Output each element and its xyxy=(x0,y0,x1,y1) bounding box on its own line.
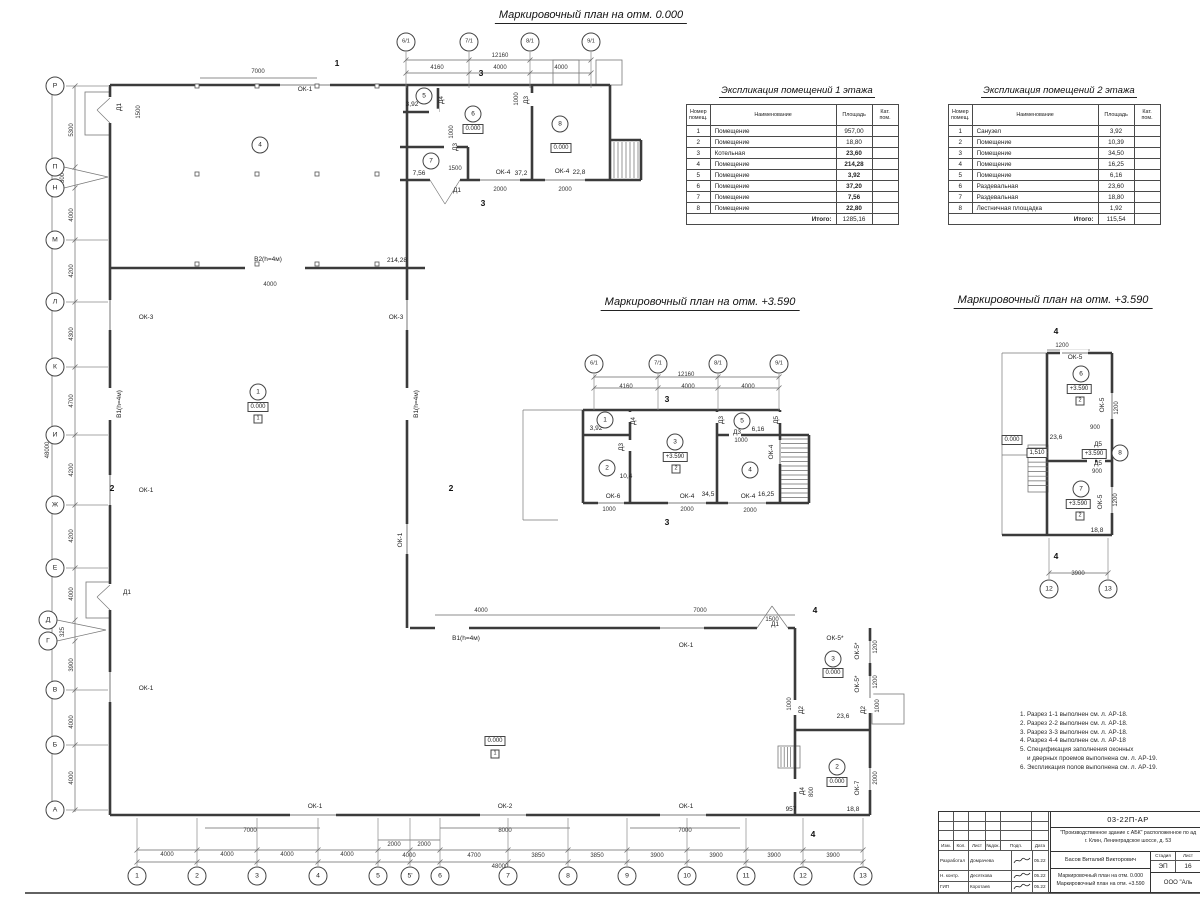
axis-bubble-row: Н xyxy=(46,179,65,198)
axis-bubble-mezzanine: 6/1 xyxy=(585,355,604,374)
dimension-label: 3850 xyxy=(531,853,544,859)
porch-outline xyxy=(85,92,110,135)
dimension-label: 4200 xyxy=(69,529,75,542)
room-number-bubble: 7 xyxy=(423,153,440,170)
plan-label: ОК-5 xyxy=(1100,398,1107,413)
room-number-bubble: 6 xyxy=(1073,366,1090,383)
dimension-label: 3900 xyxy=(709,853,722,859)
room-number-bubble: 5 xyxy=(734,413,751,430)
sheet-number: 16 xyxy=(1176,861,1200,872)
plan-label: В1(h=4м) xyxy=(414,390,421,418)
room-schedule-floor2: Экспликация помещений 2 этажа Номер поме… xyxy=(948,80,1170,225)
dimension-label: 4000 xyxy=(69,587,75,600)
amendment-cell xyxy=(969,831,986,841)
axis-bubble-column: 4 xyxy=(309,867,328,886)
plan-label: В2(h=4м) xyxy=(254,257,282,264)
elevation-mark: +3.590 xyxy=(1082,449,1107,459)
section-mark: 3 xyxy=(481,199,486,208)
plan-label: Д4 xyxy=(439,96,446,104)
room-number-bubble: 2 xyxy=(829,759,846,776)
room-number-bubble: 4 xyxy=(252,137,269,154)
axis-bubble-column: 12 xyxy=(794,867,813,886)
plan-label: 34,5 xyxy=(702,492,715,499)
dimension-label: 1200 xyxy=(1113,493,1119,506)
table-title: Экспликация помещений 2 этажа xyxy=(948,80,1170,98)
plan-label: ОК-3 xyxy=(139,315,154,322)
dimension-label: 4200 xyxy=(69,463,75,476)
dimension-label: 4000 xyxy=(474,608,487,614)
dimension-label: 7000 xyxy=(693,608,706,614)
plan-label: ОК-5* xyxy=(855,675,862,692)
dimension-label: 2000 xyxy=(558,187,571,193)
axis-bubble-row: В xyxy=(46,681,65,700)
room-schedule-floor1: Экспликация помещений 1 этажа Номер поме… xyxy=(686,80,908,225)
plan-label: 18,8 xyxy=(847,807,860,814)
plan-label: ОК-5 xyxy=(1098,495,1105,510)
plan-label: Д1 xyxy=(123,590,131,597)
signature-row: РазработалДомрачева05.22 xyxy=(939,851,1050,871)
plan-label: Д1 xyxy=(117,103,124,111)
plan-label: ОК-5* xyxy=(855,642,862,659)
dimension-label: 3900 xyxy=(767,853,780,859)
project-line1: "Производственное здание с АБК" располож… xyxy=(1051,830,1200,838)
plan-label: 16,25 xyxy=(758,492,774,499)
column-header: Номер помещ. xyxy=(949,105,973,126)
axis-bubble-right-plan: 13 xyxy=(1099,580,1118,599)
plan-label: Д2 xyxy=(799,706,806,714)
person-name: Домрачева xyxy=(969,851,1012,871)
table-row: 4Помещение214,28 xyxy=(687,159,899,170)
dimension-label: 2000 xyxy=(417,842,430,848)
dimension-label: 1000 xyxy=(514,92,520,105)
dimension-label: 3900 xyxy=(69,658,75,671)
dimension-label: 4000 xyxy=(741,384,754,390)
signature-column-header: Кол. xyxy=(954,841,969,851)
dimension-label: 3900 xyxy=(650,853,663,859)
note-item: 4. Разрез 4-4 выполнен см. л. АР-18 xyxy=(1020,737,1200,746)
roof-box xyxy=(596,60,622,85)
plan-label: Д3 xyxy=(733,430,741,437)
section-mark: 4 xyxy=(1054,552,1059,561)
amendment-cell xyxy=(986,812,1001,822)
dimension-label: 4200 xyxy=(69,264,75,277)
elevation-mark: +3.590 xyxy=(1066,499,1091,509)
table-row: 6Помещение37,20 xyxy=(687,181,899,192)
dimension-label: 48000 xyxy=(45,442,51,459)
elevation-mark: 1,510 xyxy=(1026,448,1047,458)
dimension-label: 1200 xyxy=(1114,401,1120,414)
dimension-label: 4000 xyxy=(69,771,75,784)
dimension-label: 2000 xyxy=(680,507,693,513)
plan-label: 10,4 xyxy=(620,474,633,481)
plan-label: ОК-1 xyxy=(679,643,694,650)
amendment-cell xyxy=(986,822,1001,832)
axis-bubble-column: 8 xyxy=(559,867,578,886)
axis-bubble-row: Р xyxy=(46,77,65,96)
room-number-bubble: 8 xyxy=(1112,445,1129,462)
axis-bubble-top: 7/1 xyxy=(460,33,479,52)
dimension-label: 4000 xyxy=(69,715,75,728)
elevation-mark: 0.000 xyxy=(1001,435,1022,445)
amendment-cell xyxy=(954,812,969,822)
axis-bubble-column: 9 xyxy=(618,867,637,886)
axis-bubble-row: Е xyxy=(46,559,65,578)
axis-bubble-mezzanine: 7/1 xyxy=(649,355,668,374)
axis-bubble-mezzanine: 9/1 xyxy=(770,355,789,374)
signature-icon xyxy=(1013,882,1031,891)
axis-bubble-row: М xyxy=(46,231,65,250)
plan-label: ОК-7 xyxy=(855,781,862,796)
table-total-row: Итого:1285,16 xyxy=(687,214,899,225)
room-number-bubble: 2 xyxy=(599,460,616,477)
column-header: Кат. пом. xyxy=(1134,105,1160,126)
plan-label: Д4 xyxy=(631,417,638,425)
dimension-label: 3850 xyxy=(590,853,603,859)
mezz-thin xyxy=(523,410,583,520)
room-number-bubble: 1 xyxy=(597,412,614,429)
signature-icon xyxy=(1013,856,1031,865)
column-header: Наименование xyxy=(972,105,1098,126)
elevation-mark: 0.000 xyxy=(822,668,843,678)
dimension-label: 2000 xyxy=(387,842,400,848)
axis-bubble-column: 3 xyxy=(248,867,267,886)
dimension-label: 2000 xyxy=(873,771,879,784)
amendment-cell xyxy=(969,812,986,822)
dimension-label: 4000 xyxy=(220,852,233,858)
plan-label: 3,92 xyxy=(406,102,419,109)
axis-bubble-column: 6 xyxy=(431,867,450,886)
role-label: ГИП xyxy=(939,882,969,893)
dimension-label: 325 xyxy=(60,627,66,637)
dimension-label: 12160 xyxy=(492,53,509,59)
amendment-cell xyxy=(1001,822,1032,832)
section-mark: 4 xyxy=(1054,327,1059,336)
table-row: 3Помещение34,50 xyxy=(949,148,1161,159)
amendment-cell xyxy=(1001,812,1032,822)
dimension-label: 3900 xyxy=(826,853,839,859)
plan-label: ОК-6 xyxy=(606,494,621,501)
room-number-bubble: 5 xyxy=(416,88,433,105)
project-line2: г. Клин, Ленинградское шоссе, д. 53 xyxy=(1051,838,1200,846)
dimension-label: 1200 xyxy=(873,675,879,688)
room-number-bubble: 8 xyxy=(552,116,569,133)
table-row: 7Раздевальная18,80 xyxy=(949,192,1161,203)
dimension-label: 7000 xyxy=(251,69,264,75)
plan-label: Д3 xyxy=(453,143,460,151)
elevation-mark: 0.000 xyxy=(484,736,505,746)
dimension-label: 1000 xyxy=(875,699,881,712)
plan-label: Д3 xyxy=(619,443,626,451)
person-name: Десяткова xyxy=(969,871,1012,882)
plan-label: 37,2 xyxy=(515,171,528,178)
room-number-bubble: 1 xyxy=(250,384,267,401)
schedule-table-floor1: Номер помещ.НаименованиеПлощадьКат. пом.… xyxy=(686,104,899,225)
dimension-label: 1200 xyxy=(873,640,879,653)
column-header: Площадь xyxy=(1098,105,1134,126)
plan-title-right: Маркировочный план на отм. +3.590 xyxy=(954,295,1153,309)
axis-leader-lines xyxy=(57,167,108,641)
table-row: 2Помещение10,39 xyxy=(949,137,1161,148)
table-row: 5Помещение3,92 xyxy=(687,170,899,181)
dimension-label: 4000 xyxy=(681,384,694,390)
dimension-label: 4000 xyxy=(280,852,293,858)
dimension-label: 2000 xyxy=(743,508,756,514)
amendment-cell xyxy=(954,831,969,841)
axis-bubble-column: 5' xyxy=(401,867,420,886)
note-item: 3. Разрез 3-3 выполнен см. л. АР-18. xyxy=(1020,729,1200,738)
axis-bubble-row: И xyxy=(46,426,65,445)
column-header: Кат. пом. xyxy=(872,105,898,126)
dimension-label: 800 xyxy=(809,787,815,797)
amendment-cell xyxy=(954,822,969,832)
plan-label: 18,8 xyxy=(1091,528,1104,535)
elevation-mark: 0.000 xyxy=(550,143,571,153)
plan-label: Д3 xyxy=(719,416,726,424)
dimension-label: 4700 xyxy=(467,853,480,859)
sheet-title: Маркировочный план на отм. 0.000 Маркиро… xyxy=(1051,869,1150,892)
elevation-mark: 0.000 xyxy=(247,402,268,412)
signature-column-header: Подп. xyxy=(1001,841,1032,851)
plan-label: 6,16 xyxy=(752,427,765,434)
plan-label: 23,6 xyxy=(837,714,850,721)
floor-type-mark: 2 xyxy=(672,465,681,474)
plan-label: 22,8 xyxy=(573,170,586,177)
axis-bubble-top: 8/1 xyxy=(521,33,540,52)
axis-bubble-row: А xyxy=(46,801,65,820)
plan-label: Д4 xyxy=(800,787,807,795)
dimension-label: 1000 xyxy=(787,697,793,710)
plan-label: ОК-1 xyxy=(679,804,694,811)
stage-value: ЭП xyxy=(1151,861,1176,872)
plan-label: ОК-4 xyxy=(496,170,511,177)
room-number-bubble: 4 xyxy=(742,462,759,479)
amendment-cell xyxy=(1032,812,1049,822)
table-row: 4Помещение16,25 xyxy=(949,159,1161,170)
dimension-label: 4000 xyxy=(402,853,415,859)
plan-label: Д3 xyxy=(524,96,531,104)
dimension-label: 7000 xyxy=(243,828,256,834)
notes-list: 1. Разрез 1-1 выполнен см. л. АР-18.2. Р… xyxy=(1020,711,1200,773)
table-row: 3Котельная23,60 xyxy=(687,148,899,159)
role-label: Разработал xyxy=(939,851,969,871)
plan-label: Д1 xyxy=(453,188,461,195)
amendment-cell xyxy=(939,822,954,832)
stage-sheet-values: ЭП16 xyxy=(1151,861,1200,873)
axis-bubble-mezzanine: 8/1 xyxy=(709,355,728,374)
dimension-label: 900 xyxy=(1090,425,1100,431)
plan-label: ОК-1 xyxy=(398,533,405,548)
plan-label: ОК-3 xyxy=(389,315,404,322)
elevation-mark: +3.590 xyxy=(663,452,688,462)
axis-bubble-row: П xyxy=(46,158,65,177)
dimension-label: 8000 xyxy=(498,828,511,834)
amendment-cell xyxy=(969,822,986,832)
axis-bubble-top: 9/1 xyxy=(582,33,601,52)
plan-label: ОК-2 xyxy=(498,804,513,811)
plan-label: 7,56 xyxy=(413,171,426,178)
title-block-signature-table: Изм.Кол.Лист№док.Подп.Дата РазработалДом… xyxy=(939,812,1051,892)
room-number-bubble: 3 xyxy=(825,651,842,668)
date-cell: 05.22 xyxy=(1033,882,1049,893)
dimension-label: 1000 xyxy=(602,507,615,513)
dimension-label: 1500 xyxy=(448,166,461,172)
plan-label: ОК-5 xyxy=(1068,355,1083,362)
floor-type-mark: 2 xyxy=(1076,512,1085,521)
plan-label: ОК-4 xyxy=(555,169,570,176)
plan-label: 23,6 xyxy=(1050,435,1063,442)
axis-bubble-column: 10 xyxy=(678,867,697,886)
table-row: 6Раздевальная23,60 xyxy=(949,181,1161,192)
note-item: 6. Экспликация полов выполнена см. л. АР… xyxy=(1020,764,1200,773)
company-name: ООО "Аль xyxy=(1151,873,1200,892)
dimension-label: 1500 xyxy=(765,617,778,623)
dimension-label: 900 xyxy=(1092,469,1102,475)
plan-label: ОК-4 xyxy=(769,445,776,460)
elevation-mark: 0.000 xyxy=(826,777,847,787)
plan-label: ОК-1 xyxy=(139,686,154,693)
section-mark: 3 xyxy=(665,518,670,527)
amendment-cell xyxy=(986,831,1001,841)
plan-label: 214,28 xyxy=(387,258,407,265)
dimension-label: 1500 xyxy=(136,105,142,118)
signature-cell xyxy=(1012,882,1033,893)
signature-column-header: Дата xyxy=(1032,841,1049,851)
axis-bubble-row: Д xyxy=(39,611,58,630)
table-row: 8Лестничная площадка1,92 xyxy=(949,203,1161,214)
dimension-label: 2000 xyxy=(493,187,506,193)
table-row: 8Помещение22,80 xyxy=(687,203,899,214)
section-mark: 3 xyxy=(479,69,484,78)
table-total-row: Итого:115,54 xyxy=(949,214,1161,225)
table-row: 1Помещение957,00 xyxy=(687,126,899,137)
signature-icon xyxy=(1013,871,1031,880)
signature-column-header: Изм. xyxy=(939,841,954,851)
dimension-label: 4000 xyxy=(69,208,75,221)
signature-row: ГИПКоротаев05.22 xyxy=(939,882,1050,893)
amendment-cell xyxy=(1032,822,1049,832)
amendment-cell xyxy=(1032,831,1049,841)
floor-type-mark: 2 xyxy=(1076,397,1085,406)
axis-bubble-column: 2 xyxy=(188,867,207,886)
table-row: 1Санузел3,92 xyxy=(949,126,1161,137)
signature-cell xyxy=(1012,871,1033,882)
plan-title-mezz: Маркировочный план на отм. +3.590 xyxy=(601,297,800,311)
column-header: Площадь xyxy=(836,105,872,126)
axis-bubble-row: Б xyxy=(46,736,65,755)
section-mark: 4 xyxy=(811,830,816,839)
plan-label: Д5 xyxy=(1094,461,1102,468)
plan-label: ОК-5* xyxy=(826,636,843,643)
dimension-label: 4700 xyxy=(69,394,75,407)
author-name: Басов Виталий Викторович xyxy=(1051,852,1150,869)
table-title: Экспликация помещений 1 этажа xyxy=(686,80,908,98)
table-row: 5Помещение6,16 xyxy=(949,170,1161,181)
axis-bubble-column: 1 xyxy=(128,867,147,886)
dimension-label: 1200 xyxy=(1055,343,1068,349)
plan-label: ОК-4 xyxy=(741,494,756,501)
section-mark: 2 xyxy=(110,484,115,493)
axis-bubble-row: К xyxy=(46,358,65,377)
axis-bubble-column: 5 xyxy=(369,867,388,886)
plan-title-main: Маркировочный план на отм. 0.000 xyxy=(495,10,687,24)
section-mark: 3 xyxy=(665,395,670,404)
signature-column-header: №док. xyxy=(986,841,1001,851)
room-number-bubble: 7 xyxy=(1073,481,1090,498)
dimension-label: 4000 xyxy=(493,65,506,71)
date-cell: 05.22 xyxy=(1033,871,1049,882)
column-header: Наименование xyxy=(710,105,836,126)
project-name: "Производственное здание с АБК" располож… xyxy=(1051,828,1200,852)
axis-bubble-top: 6/1 xyxy=(397,33,416,52)
dimension-label: 3900 xyxy=(1071,571,1084,577)
porch-outline xyxy=(86,582,110,618)
dimension-label: 7000 xyxy=(678,828,691,834)
dimension-label: 5300 xyxy=(69,123,75,136)
elevation-mark: 0.000 xyxy=(462,124,483,134)
signature-cell xyxy=(1012,851,1033,871)
room-number-bubble: 6 xyxy=(465,106,482,123)
axis-bubble-row: Л xyxy=(46,293,65,312)
signature-column-header: Лист xyxy=(969,841,986,851)
dimension-label: 4000 xyxy=(554,65,567,71)
plan-label: ОК-4 xyxy=(680,494,695,501)
dimension-label: 1000 xyxy=(449,125,455,138)
plan-label: Д5 xyxy=(1094,442,1102,449)
note-item: 2. Разрез 2-2 выполнен см. л. АР-18. xyxy=(1020,720,1200,729)
role-label: Н. контр. xyxy=(939,871,969,882)
person-name: Коротаев xyxy=(969,882,1012,893)
axis-bubble-column: 13 xyxy=(854,867,873,886)
section-mark: 4 xyxy=(813,606,818,615)
dimension-label: 4300 xyxy=(69,327,75,340)
title-block: Изм.Кол.Лист№док.Подп.Дата РазработалДом… xyxy=(938,811,1200,893)
axis-bubble-row: Ж xyxy=(46,496,65,515)
plan-label: Д2 xyxy=(861,706,868,714)
axis-bubble-right-plan: 12 xyxy=(1040,580,1059,599)
dimension-label: 4000 xyxy=(263,282,276,288)
document-code: 03-22П-АР xyxy=(1051,812,1200,828)
note-item: 5. Спецификация заполнения оконных и две… xyxy=(1020,746,1200,764)
room-number-bubble: 3 xyxy=(667,434,684,451)
section-mark: 1 xyxy=(335,59,340,68)
dimension-label: 4000 xyxy=(340,852,353,858)
roof-box xyxy=(553,60,579,85)
dimension-label: 4160 xyxy=(619,384,632,390)
signature-row: Н. контр.Десяткова05.22 xyxy=(939,871,1050,882)
dimension-label: 4160 xyxy=(430,65,443,71)
axis-bubble-column: 11 xyxy=(737,867,756,886)
plan-label: В1(h=4м) xyxy=(452,636,480,643)
schedule-table-floor2: Номер помещ.НаименованиеПлощадьКат. пом.… xyxy=(948,104,1161,225)
plan-label: 957 xyxy=(786,807,797,814)
column-header: Номер помещ. xyxy=(687,105,711,126)
dimension-label: 1000 xyxy=(734,438,747,444)
section-mark: 2 xyxy=(449,484,454,493)
amendment-cell xyxy=(1001,831,1032,841)
date-cell: 05.22 xyxy=(1033,851,1049,871)
note-item: 1. Разрез 1-1 выполнен см. л. АР-18. xyxy=(1020,711,1200,720)
floor-type-mark: 1 xyxy=(254,415,263,424)
plan-label: ОК-1 xyxy=(308,804,323,811)
plan-label: ОК-1 xyxy=(139,488,154,495)
amendment-cell xyxy=(939,831,954,841)
plan-label: Д5 xyxy=(774,416,781,424)
plan-label: ОК-1 xyxy=(298,87,313,94)
stage-sheet-header: СтадияЛист xyxy=(1151,852,1200,861)
elevation-mark: +3.590 xyxy=(1067,384,1092,394)
axis-bubble-column: 7 xyxy=(499,867,518,886)
dimension-label: 12160 xyxy=(678,372,695,378)
